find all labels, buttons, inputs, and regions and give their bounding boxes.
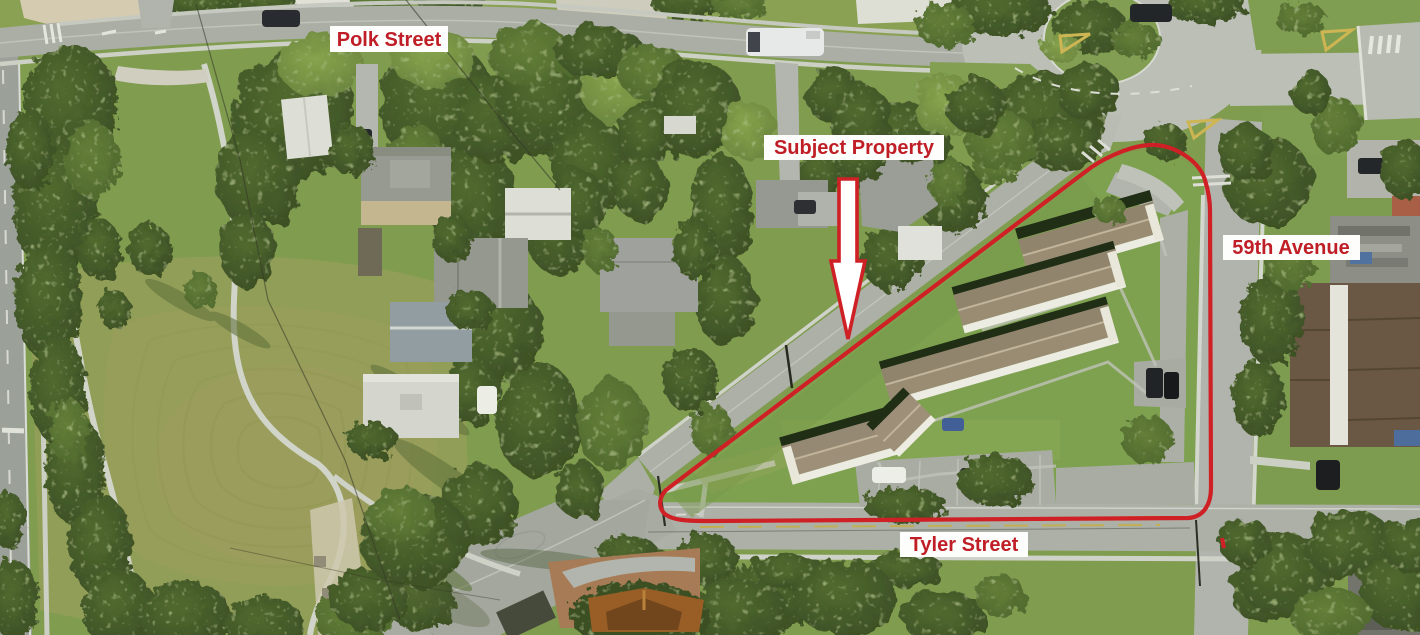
svg-text:Subject Property: Subject Property <box>774 137 935 159</box>
svg-text:59th Avenue: 59th Avenue <box>1232 237 1349 259</box>
svg-text:Polk Street: Polk Street <box>337 29 442 51</box>
svg-text:Tyler Street: Tyler Street <box>910 534 1019 556</box>
